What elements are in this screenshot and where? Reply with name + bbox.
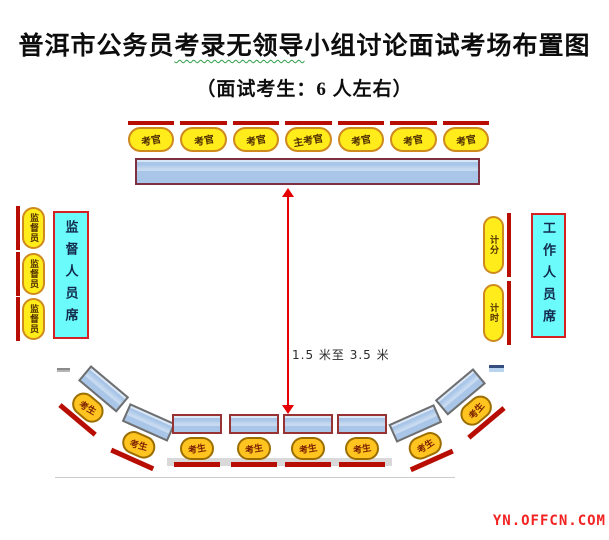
- examiner-seat-oval: 考官: [233, 127, 279, 152]
- candidate-seat-4: 考生: [229, 414, 279, 467]
- chair-back-bar: [338, 121, 384, 125]
- chair-back-bar: [174, 462, 220, 467]
- title-part1: 普洱市公务员: [18, 33, 174, 60]
- candidate-label: 考生: [187, 441, 207, 457]
- candidate-seat-6: 考生: [337, 414, 387, 467]
- supervisor-chair-3: 监督员: [16, 297, 46, 341]
- candidate-desk: [337, 414, 387, 434]
- chief-examiner-label: 主考官: [292, 130, 324, 150]
- scorer-chair: 计分: [483, 213, 512, 277]
- chair-back-bar: [443, 121, 489, 125]
- examiner-seat-oval: 考官: [128, 127, 174, 152]
- candidate-desk: [172, 414, 222, 434]
- stray-mark-right: [489, 365, 504, 372]
- examiner-chair-5: 考官: [338, 121, 384, 152]
- scorer-label: 计分: [489, 235, 498, 255]
- chair-back-bar: [285, 121, 331, 125]
- examiner-seat-oval: 考官: [338, 127, 384, 152]
- page-subtitle: （面试考生：6 人左右）: [0, 74, 609, 101]
- timer-chair: 计时: [483, 281, 512, 345]
- supervisor-seat-oval: 监督员: [22, 298, 45, 340]
- candidate-label: 考生: [352, 441, 372, 457]
- candidate-seat-5: 考生: [283, 414, 333, 467]
- watermark: YN.OFFCN.COM: [493, 513, 606, 529]
- supervisor-seat-oval: 监督员: [22, 253, 45, 295]
- arrow-down-icon: [282, 405, 294, 414]
- candidate-label: 考生: [465, 400, 487, 422]
- supervisor-seat-oval: 监督员: [22, 207, 45, 249]
- chair-back-bar: [16, 252, 20, 296]
- examiner-chair-7: 考官: [443, 121, 489, 152]
- examiner-label: 考官: [140, 130, 162, 148]
- diagram-canvas: 普洱市公务员考录无领导小组讨论面试考场布置图 （面试考生：6 人左右） 考官 考…: [0, 0, 609, 540]
- candidate-desk: [283, 414, 333, 434]
- examiner-seat-oval: 考官: [390, 127, 436, 152]
- scorer-seat-oval: 计分: [483, 216, 504, 274]
- chair-back-bar: [180, 121, 226, 125]
- candidate-label: 考生: [77, 397, 99, 417]
- supervisor-label: 监督员: [29, 259, 38, 289]
- supervisor-chair-1: 监督员: [16, 206, 46, 250]
- chair-back-bar: [390, 121, 436, 125]
- chair-back-bar: [507, 281, 511, 345]
- candidate-seat-oval: 考生: [345, 437, 379, 460]
- chair-back-bar: [16, 206, 20, 250]
- examiner-chair-6: 考官: [390, 121, 436, 152]
- supervisor-panel-label: 监督人员席: [65, 220, 78, 330]
- distance-label: 1.5 米至 3.5 米: [292, 346, 390, 363]
- examiner-chair-1: 考官: [128, 121, 174, 152]
- supervisor-label: 监督员: [29, 304, 38, 334]
- candidate-desk: [229, 414, 279, 434]
- timer-seat-oval: 计时: [483, 284, 504, 342]
- examiner-row: 考官 考官 考官 主考官 考官 考官 考官: [128, 121, 489, 152]
- examiner-seat-oval: 考官: [180, 127, 226, 152]
- candidate-label: 考生: [414, 435, 436, 456]
- chief-examiner-seat-oval: 主考官: [285, 127, 331, 152]
- floor-line: [55, 477, 455, 478]
- chair-back-bar: [16, 297, 20, 341]
- examiner-seat-oval: 考官: [443, 127, 489, 152]
- examiner-label: 考官: [455, 130, 477, 148]
- chief-examiner-chair: 主考官: [285, 121, 331, 152]
- examiner-chair-2: 考官: [180, 121, 226, 152]
- supervisor-chair-2: 监督员: [16, 252, 46, 296]
- candidate-label: 考生: [298, 441, 318, 457]
- examiner-label: 考官: [245, 130, 267, 148]
- examiner-label: 考官: [192, 130, 214, 148]
- chair-back-bar: [339, 462, 385, 467]
- examiner-chair-3: 考官: [233, 121, 279, 152]
- candidate-seat-3: 考生: [172, 414, 222, 467]
- supervisor-panel: 监督人员席: [53, 211, 89, 339]
- candidate-label: 考生: [244, 441, 264, 457]
- candidate-seat-oval: 考生: [180, 437, 214, 460]
- supervisor-label: 监督员: [29, 213, 38, 243]
- examiner-label: 考官: [402, 130, 424, 148]
- chair-back-bar: [507, 213, 511, 277]
- examiner-label: 考官: [350, 130, 372, 148]
- staff-panel-label: 工作人员席: [542, 221, 555, 331]
- chair-back-bar: [128, 121, 174, 125]
- candidate-seat-oval: 考生: [237, 437, 271, 460]
- title-part3: 小组讨论面试考场布置图: [305, 33, 591, 60]
- chair-back-bar: [231, 462, 277, 467]
- examiner-table: [135, 158, 480, 185]
- candidate-label: 考生: [128, 436, 149, 453]
- staff-panel: 工作人员席: [531, 213, 566, 338]
- page-title: 普洱市公务员考录无领导小组讨论面试考场布置图: [0, 26, 609, 62]
- chair-back-bar: [285, 462, 331, 467]
- candidate-seat-oval: 考生: [291, 437, 325, 460]
- candidate-seat-2: 考生: [108, 403, 175, 472]
- distance-arrow-line: [287, 196, 289, 408]
- chair-back-bar: [233, 121, 279, 125]
- candidate-seat-7: 考生: [388, 404, 455, 473]
- title-part-underlined: 考录无领导: [174, 33, 304, 60]
- timer-label: 计时: [489, 303, 498, 323]
- stray-mark-left: [57, 368, 70, 372]
